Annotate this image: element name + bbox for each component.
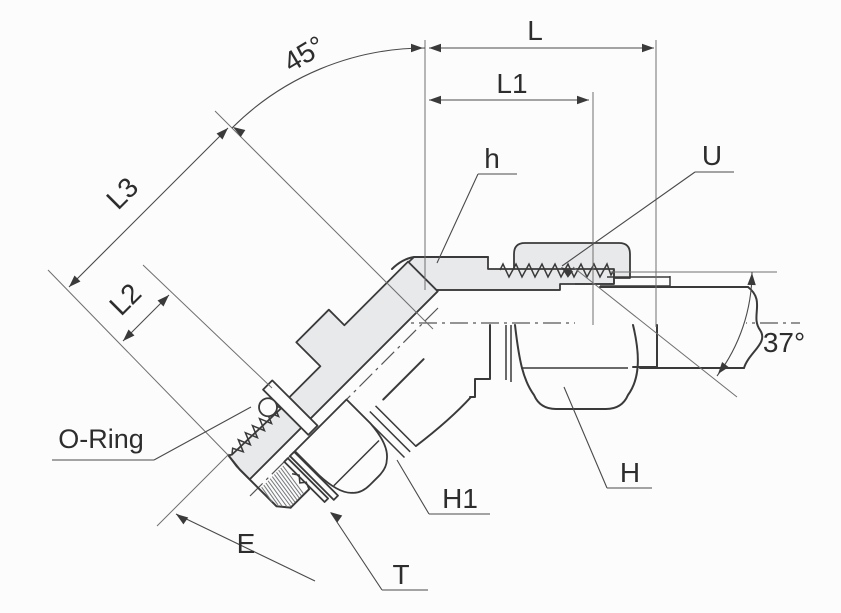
dim-label-E: E <box>237 528 256 559</box>
fitting-dimension-drawing: L L1 45° L3 L2 h U 37° O-Ring E T H1 H <box>0 0 841 613</box>
angle-label-45: 45° <box>278 30 330 78</box>
dim-label-L: L <box>527 15 543 46</box>
dim-label-L1: L1 <box>496 68 527 99</box>
dim-label-L3: L3 <box>100 171 144 215</box>
thread-extension-line <box>157 454 229 526</box>
label-o-ring: O-Ring <box>58 424 144 454</box>
drawing-canvas: L L1 45° L3 L2 h U 37° O-Ring E T H1 H <box>0 0 841 613</box>
oring-plane-line <box>143 265 272 388</box>
swivel-nut-external <box>416 325 657 446</box>
dim-label-H: H <box>620 457 640 488</box>
inner-bend-fillet <box>416 397 471 446</box>
leader-T <box>331 513 428 590</box>
dim-label-U: U <box>702 140 722 171</box>
bend-angle-arc <box>232 48 425 128</box>
dim-label-L2: L2 <box>103 277 147 321</box>
dim-label-h: h <box>484 143 500 174</box>
dim-label-H1: H1 <box>442 483 478 514</box>
tube <box>575 276 762 368</box>
stud-body-section <box>265 246 438 419</box>
leader-lines <box>52 172 734 590</box>
bend-datum-line <box>215 111 433 329</box>
tube-break-line <box>744 287 762 368</box>
hex-flat-edge <box>383 359 423 399</box>
angle-label-37: 37° <box>763 327 805 358</box>
leader-h <box>437 174 517 263</box>
dim-label-T: T <box>392 559 409 590</box>
